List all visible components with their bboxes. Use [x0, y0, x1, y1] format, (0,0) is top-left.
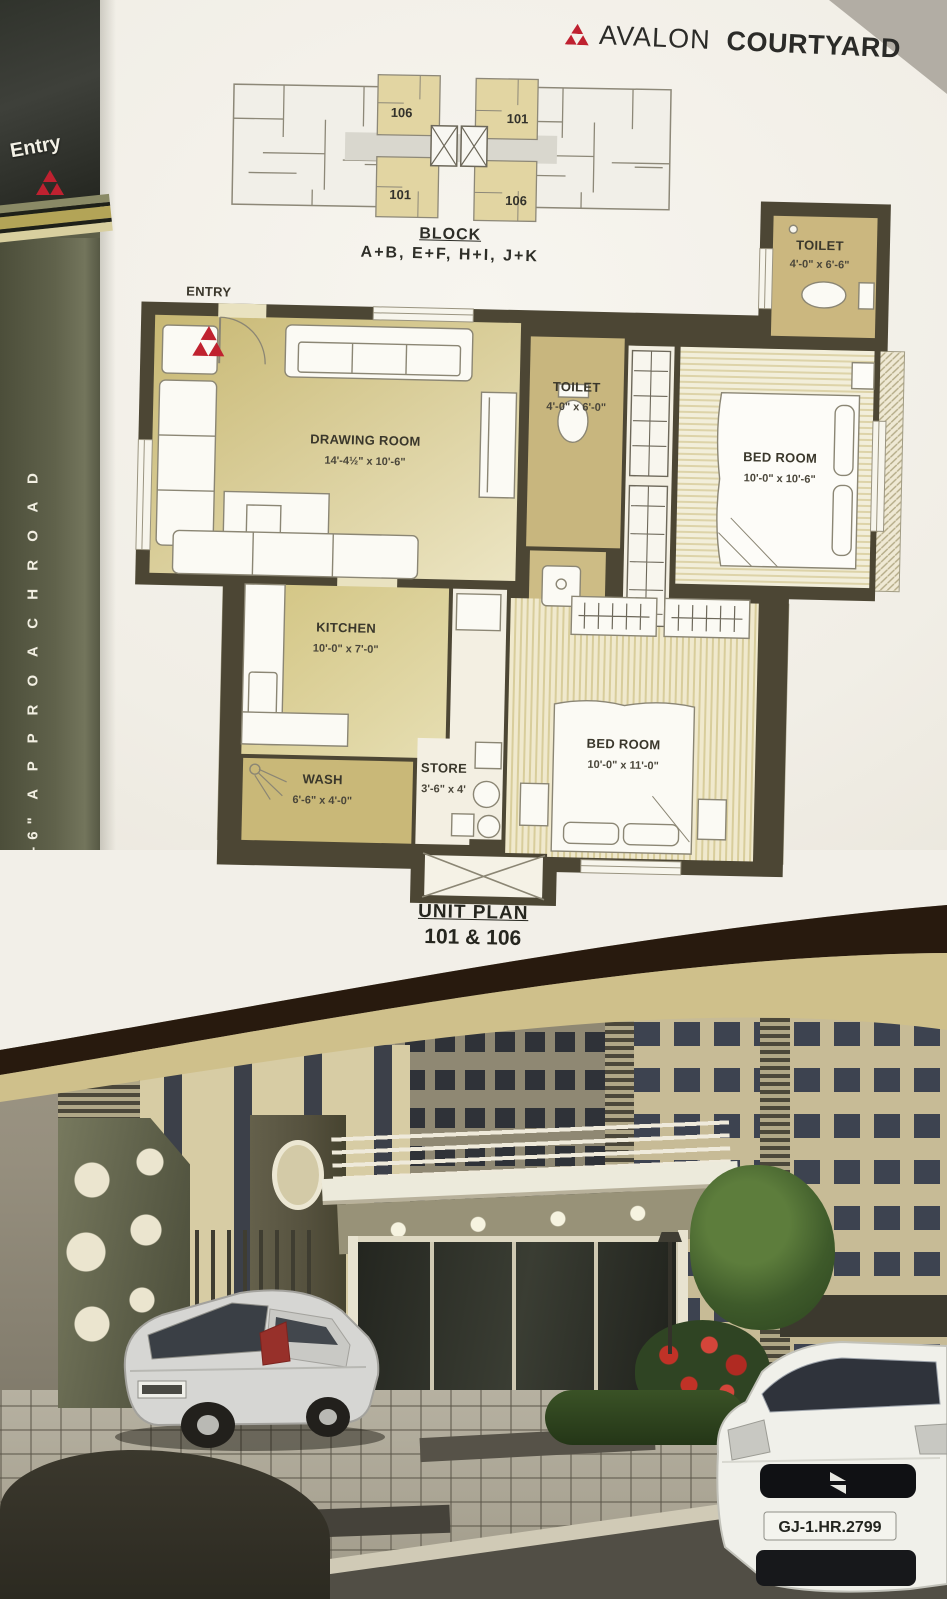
tv-unit: [479, 392, 516, 498]
room-dims: 10'-0" x 11'-0": [587, 759, 659, 773]
pillow: [834, 405, 855, 475]
floor-plan: ENTRY TOILET 4'-0" x 6'-6" TOILET 4'-0" …: [110, 174, 918, 924]
sofa: [172, 530, 418, 579]
pillow: [832, 485, 853, 555]
entry-opening: [218, 303, 266, 318]
entry-side-logo-icon: [36, 170, 64, 195]
bedside-table: [852, 363, 875, 389]
room-label: KITCHEN: [316, 620, 376, 636]
block-unit-106-tl: 106: [391, 105, 413, 120]
title-avalon: AVALON: [598, 20, 711, 56]
room-label: STORE: [421, 760, 467, 776]
room-dims: 10'-0" x 7'-0": [313, 642, 379, 655]
pillow: [623, 824, 678, 846]
room-dims: 4'-0" x 6'-6": [790, 258, 850, 271]
silver-car: [100, 1275, 400, 1455]
room-label: WASH: [302, 771, 343, 787]
room-dims: 3'-6" x 4': [421, 783, 466, 796]
room-label: BED ROOM: [743, 449, 817, 466]
brochure-photo: GJ-1.HR.2799 AVALON COURTYARD: [0, 0, 947, 1599]
street-lamp: [668, 1242, 672, 1354]
street-lamp-head: [658, 1232, 682, 1242]
entry-label: ENTRY: [186, 283, 231, 299]
brand-logo-icon: [565, 23, 590, 45]
pillow: [563, 822, 618, 844]
toilet-top-floor: [771, 216, 878, 338]
license-plate-text: GJ-1.HR.2799: [778, 1519, 881, 1536]
room-dims: 10'-0" x 10'-6": [744, 472, 816, 486]
room-label: TOILET: [553, 379, 601, 395]
cistern: [859, 283, 875, 309]
approach-road-label: 29'-6" A P P R O A C H R O A D: [12, 500, 54, 860]
kitchen-sink: [248, 672, 277, 717]
kitchen-platform: [456, 594, 501, 631]
unit-plan-units: 101 & 106: [368, 924, 578, 952]
room-dims: 14'-4½" x 10'-6": [324, 455, 405, 469]
sofa: [156, 380, 217, 546]
white-car: GJ-1.HR.2799: [700, 1332, 947, 1599]
store-shelf: [477, 815, 499, 837]
store-shelf: [473, 781, 500, 808]
wc: [802, 281, 847, 308]
bedside-table: [520, 783, 549, 826]
unit-plan-title: UNIT PLAN: [368, 900, 578, 926]
store-shelf: [475, 742, 502, 769]
room-label: TOILET: [796, 237, 844, 253]
bedside-table: [697, 799, 726, 840]
room-dims: 4'-0" x 6'-0": [546, 401, 606, 414]
room-label: DRAWING ROOM: [310, 431, 421, 449]
unit-plan-caption: UNIT PLAN 101 & 106: [368, 900, 579, 952]
tower-oval-window: [272, 1140, 324, 1210]
room-label: BED ROOM: [586, 736, 660, 753]
kitchen-counter: [242, 712, 349, 746]
block-unit-101-tr: 101: [507, 111, 529, 126]
store-shelf: [451, 814, 473, 836]
room-dims: 6'-6" x 4'-0": [292, 794, 352, 807]
